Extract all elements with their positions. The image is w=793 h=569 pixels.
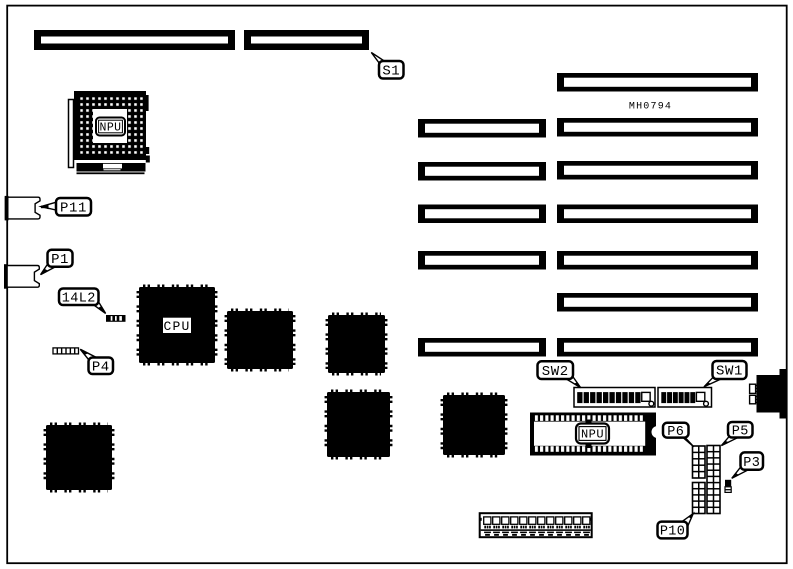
- svg-text:S1: S1: [382, 63, 400, 79]
- svg-text:P3: P3: [743, 456, 760, 471]
- svg-text:MH0794: MH0794: [629, 101, 672, 112]
- svg-text:SW2: SW2: [542, 364, 569, 380]
- svg-text:SW1: SW1: [716, 364, 743, 380]
- svg-text:14L2: 14L2: [62, 291, 96, 306]
- svg-text:CPU: CPU: [163, 319, 190, 334]
- svg-text:P11: P11: [60, 200, 87, 216]
- svg-text:P10: P10: [660, 525, 685, 540]
- svg-text:P1: P1: [51, 252, 69, 268]
- svg-text:P5: P5: [732, 424, 749, 439]
- svg-text:P6: P6: [667, 425, 684, 440]
- svg-text:NPU: NPU: [100, 121, 122, 134]
- svg-text:P4: P4: [92, 359, 110, 375]
- svg-text:NPU: NPU: [581, 428, 604, 442]
